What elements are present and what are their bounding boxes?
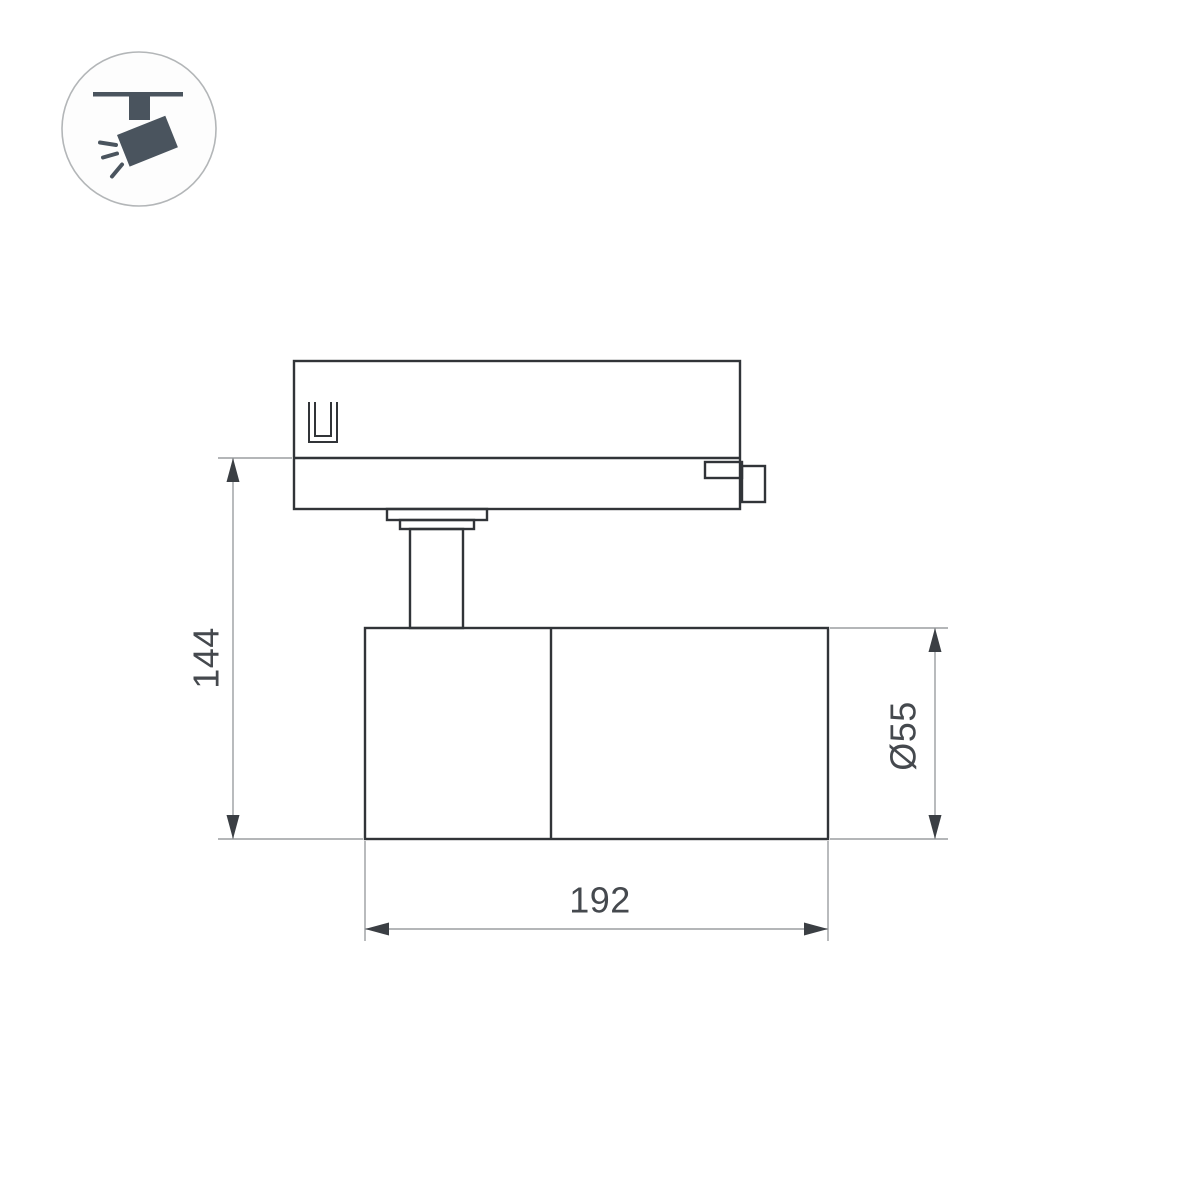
arrowhead-up (227, 458, 240, 482)
product-badge (62, 52, 216, 206)
stem (410, 529, 463, 628)
length-dimension-label: 192 (569, 880, 631, 921)
fixture-drawing (294, 361, 828, 839)
stem-flange-upper (387, 509, 487, 520)
icon-light-ray (100, 143, 116, 146)
height-dimension-label: 144 (186, 627, 227, 689)
arrowhead-down (929, 815, 942, 839)
track-adapter-outline (294, 361, 740, 509)
dimension-length: 192 (365, 841, 828, 941)
lock-lever-knob (742, 466, 765, 502)
arrowhead-right (804, 923, 828, 936)
arrowhead-left (365, 923, 389, 936)
spotlight-dimension-drawing: 144 Ø55 192 (0, 0, 1200, 1200)
dimension-height: 144 (186, 458, 364, 839)
icon-stem (129, 95, 150, 120)
dimension-diameter: Ø55 (830, 628, 948, 839)
arrowhead-up (929, 628, 942, 652)
diameter-dimension-label: Ø55 (883, 701, 924, 771)
arrowhead-down (227, 815, 240, 839)
lamp-body-outline (365, 628, 828, 839)
technical-drawing-page: 144 Ø55 192 (0, 0, 1200, 1200)
stem-flange-lower (400, 520, 474, 529)
lock-lever-arm (705, 462, 742, 478)
contact-slot-inner (315, 402, 331, 436)
